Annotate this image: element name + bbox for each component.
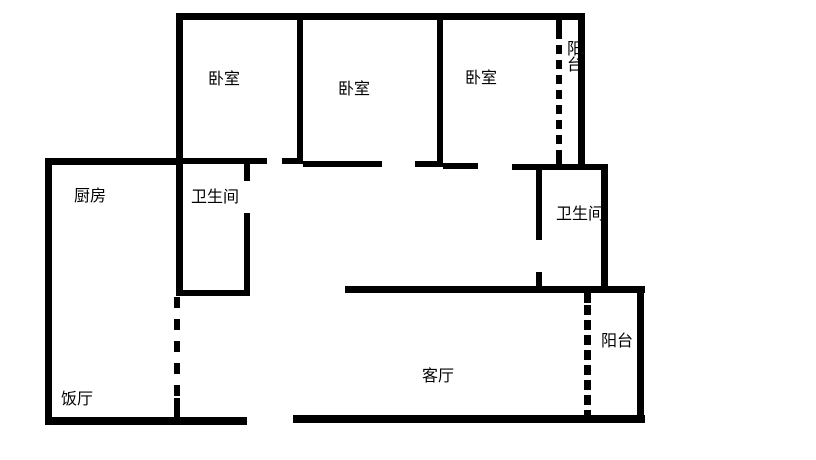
wall-segment-bedroom2-bottom-right: [415, 161, 443, 167]
room-label-bedroom-2: 卧室: [338, 82, 370, 98]
room-label-living-room: 客厅: [422, 369, 454, 385]
wall-segment-livingroom-bottom-wall: [293, 415, 645, 423]
room-label-kitchen: 厨房: [74, 189, 106, 205]
room-label-bathroom-right: 卫生间: [556, 207, 604, 223]
wall-segment-bathroomL-right-wall-upper: [244, 163, 250, 181]
wall-segment-bedroom3-bottom-right: [512, 164, 607, 170]
room-label-dining-room: 饭厅: [61, 392, 93, 408]
wall-segment-bathroomL-bottom-wall: [177, 290, 250, 296]
room-label-bedroom-3: 卧室: [465, 71, 497, 87]
wall-segment-divider-bedroom2-bedroom3: [437, 13, 443, 166]
wall-segment-balcony-top-stub-upper: [556, 20, 562, 30]
dashed-partition-balcony-top-dashed-partition: [556, 30, 562, 152]
wall-segment-bedroom3-right-wall: [578, 13, 585, 167]
wall-segment-livingroom-top-wall: [345, 286, 645, 293]
floor-plan-canvas: 卧室 卧室 卧室 阳台 厨房 卫生间 卫生间 客厅 阳台 饭厅: [0, 0, 816, 460]
wall-segment-divider-bedroom1-bedroom2: [297, 13, 303, 164]
wall-segment-balconyR-right-wall: [637, 286, 644, 423]
wall-segment-bedroom2-bottom-left: [303, 161, 382, 167]
dashed-partition-dining-dashed-partition: [174, 297, 180, 398]
wall-segment-bathroomL-top-wall: [183, 158, 267, 164]
dashed-partition-balconyR-dashed-partition: [584, 305, 591, 415]
wall-segment-bedroom1-left-wall: [176, 13, 183, 296]
wall-segment-bathroomR-left-wall-upper: [536, 168, 542, 240]
wall-segment-bathroomR-right-wall: [601, 164, 608, 290]
room-label-bathroom-left: 卫生间: [191, 190, 239, 206]
room-label-balcony-right: 阳台: [601, 334, 633, 350]
wall-segment-top-outer-wall: [177, 13, 585, 20]
room-label-bedroom-1: 卧室: [208, 72, 240, 88]
wall-segment-kitchen-top-wall: [45, 158, 183, 165]
wall-segment-left-outer-wall: [45, 158, 52, 425]
wall-segment-bedroom3-bottom-left: [443, 163, 478, 169]
wall-segment-hall-wall-seg-282-303: [282, 158, 303, 164]
wall-segment-bathroomL-right-wall-lower: [244, 213, 250, 296]
wall-segment-dining-bottom-wall: [45, 417, 247, 425]
wall-segment-balconyR-dash-stub: [584, 293, 591, 303]
